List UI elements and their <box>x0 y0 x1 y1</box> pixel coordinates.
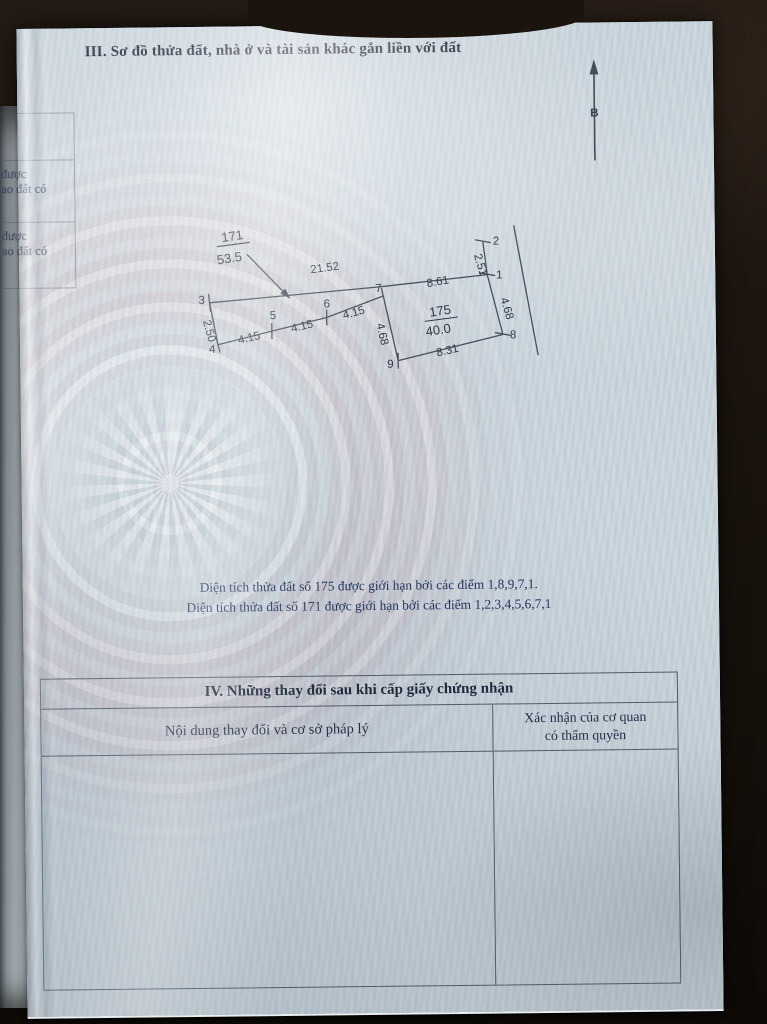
certificate-page: được ao đất có được ao đất có III. Sơ đồ… <box>16 20 723 1019</box>
measurement: 2.51 <box>471 252 489 277</box>
vertex: 9 <box>387 359 394 371</box>
measurement: 4.68 <box>498 296 516 321</box>
vertex-numbers: 2 1 8 3 4 5 6 7 9 <box>198 235 517 373</box>
column-header-content: Nội dung thay đổi và cơ sở pháp lý <box>41 705 493 756</box>
vertex: 4 <box>209 344 216 356</box>
vertex: 7 <box>375 283 382 295</box>
vertex: 3 <box>198 295 205 307</box>
measurement: 21.52 <box>310 261 340 277</box>
section-iv-table: IV. Những thay đổi sau khi cấp giấy chứn… <box>40 672 681 991</box>
confirmation-header-line2: có thẩm quyền <box>545 726 626 745</box>
boundary-notes: Diện tích thửa đất số 175 được giới hạn … <box>151 574 587 619</box>
measurement: 2.50 <box>200 319 217 344</box>
parcel-171-label: 171 53.5 <box>215 227 250 268</box>
parcel-boundaries <box>208 225 539 371</box>
leader-arrow-line <box>247 254 287 296</box>
measurement: 8.31 <box>435 343 459 360</box>
measurement: 4.15 <box>290 318 315 335</box>
vertex: 2 <box>493 236 500 248</box>
vertex: 5 <box>270 310 277 322</box>
parcel-175-area: 40.0 <box>425 320 452 339</box>
vertex: 1 <box>496 269 503 281</box>
north-arrow: B <box>589 59 599 160</box>
measurement: 4.68 <box>374 322 391 346</box>
measurement: 4.15 <box>237 330 262 347</box>
section-iv-empty-body <box>42 750 681 990</box>
empty-confirmation-cell <box>494 750 681 985</box>
parcel-175-label: 175 40.0 <box>424 302 458 339</box>
north-label: B <box>590 107 598 119</box>
edge-measurements: 21.52 8.61 4.15 4.15 4.15 2.50 2.51 4.68… <box>199 252 516 362</box>
vertex: 8 <box>510 329 517 341</box>
parcel-171-number: 171 <box>220 227 244 245</box>
confirmation-header-line1: Xác nhận của cơ quan <box>524 708 646 727</box>
section-iv-header-row: Nội dung thay đổi và cơ sở pháp lý Xác n… <box>41 703 677 757</box>
column-header-confirmation: Xác nhận của cơ quan có thẩm quyền <box>493 703 678 751</box>
vertex: 6 <box>323 298 330 310</box>
empty-content-cell <box>42 752 497 990</box>
measurement: 8.61 <box>426 274 450 290</box>
parcel-171-area: 53.5 <box>216 249 243 268</box>
measurement: 4.15 <box>341 304 366 322</box>
adjacent-boundary-line <box>514 225 538 355</box>
parcel-175-number: 175 <box>428 302 452 320</box>
